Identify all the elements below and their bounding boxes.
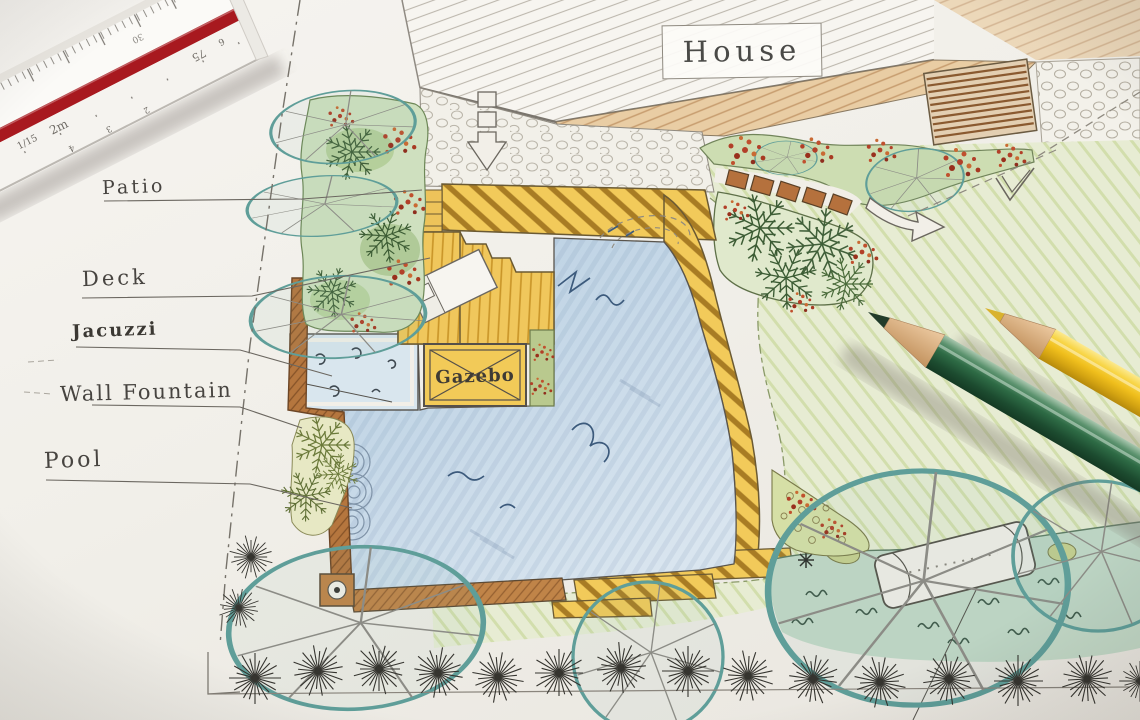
pool-label: Pool [44,447,104,474]
gazebo-label: Gazebo [428,364,523,388]
photo-vignette [0,0,1140,720]
photo-landscape-plan: 1/15 2m 30 75 6 2 3 4 Patio Deck Jacuzzi… [0,0,1140,720]
wall-fountain-label: Wall Fountain [60,378,233,407]
house-label: House [662,23,823,80]
jacuzzi-label: Jacuzzi [72,319,158,343]
patio-label: Patio [102,175,166,199]
deck-label: Deck [82,265,149,291]
plan-drawing: 1/15 2m 30 75 6 2 3 4 [0,0,1140,720]
